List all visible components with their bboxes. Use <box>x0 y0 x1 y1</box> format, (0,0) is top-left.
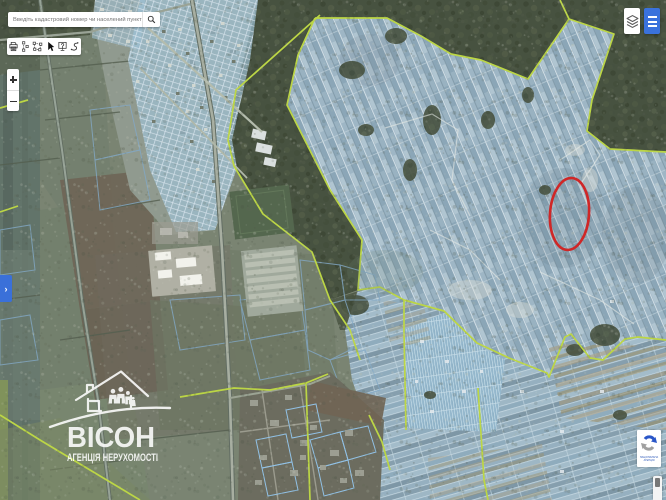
svg-text:АГЕНЦІЯ НЕРУХОМОСТІ: АГЕНЦІЯ НЕРУХОМОСТІ <box>67 452 158 464</box>
svg-text:ВІСОН: ВІСОН <box>67 422 155 454</box>
